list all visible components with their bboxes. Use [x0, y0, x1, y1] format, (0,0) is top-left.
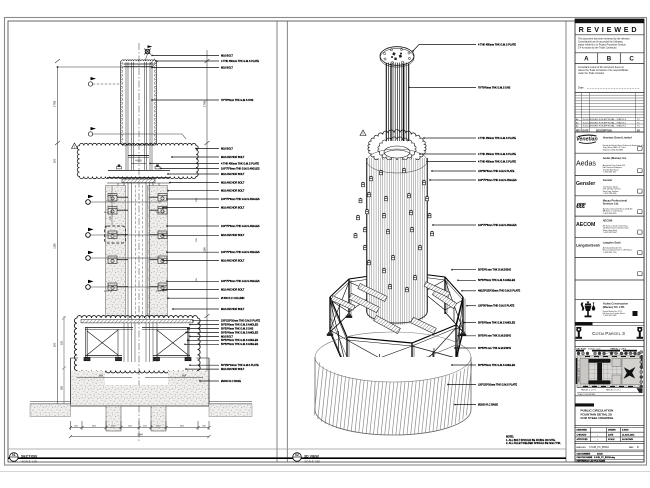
- svg-text:DWG NO: DWG NO: [577, 447, 587, 449]
- svg-text:F+0 TYP: F+0 TYP: [104, 212, 113, 214]
- svg-text:T +853 2833 1113: T +853 2833 1113: [603, 172, 617, 174]
- svg-text:500: 500: [53, 342, 57, 347]
- svg-text:31528: 31528: [597, 453, 603, 455]
- svg-text:FOR STEEL DRAWING: FOR STEEL DRAWING: [581, 416, 614, 420]
- svg-text:DATE: DATE: [608, 433, 614, 436]
- svg-text:CAD FILE NAME: CAD FILE NAME: [577, 456, 593, 459]
- svg-text:100*75*6mm THK G.M.S ANGLES: 100*75*6mm THK G.M.S ANGLES: [221, 167, 260, 170]
- svg-text:M16 ANCHOR BOLT: M16 ANCHOR BOLT: [221, 234, 245, 237]
- svg-text:M16 ANCHOR BOLT: M16 ANCHOR BOLT: [221, 173, 245, 176]
- svg-text:Langdon Seah: Langdon Seah: [603, 241, 621, 245]
- svg-text:PARCEL 2, LOT 2: PARCEL 2, LOT 2: [606, 389, 620, 392]
- svg-text:TC: TC: [637, 122, 640, 124]
- svg-text:4 THK 450mm THK G.M.S PLATE: 4 THK 450mm THK G.M.S PLATE: [221, 60, 259, 63]
- svg-text:LangdonSeah: LangdonSeah: [576, 244, 600, 248]
- svg-text:DESCRIPTION: DESCRIPTION: [596, 130, 612, 132]
- svg-text:01: 01: [12, 453, 16, 457]
- svg-text:DRAWN: DRAWN: [608, 429, 616, 432]
- svg-text:4 THK 450mm THK G.M.S PLATE: 4 THK 450mm THK G.M.S PLATE: [478, 137, 516, 140]
- svg-text:M16 BOLT: M16 BOLT: [221, 147, 233, 150]
- svg-text:100*75*6mm THK G.M.S ANGLES: 100*75*6mm THK G.M.S ANGLES: [221, 198, 260, 201]
- svg-text:T +852 3922 9000: T +852 3922 9000: [603, 232, 617, 234]
- svg-text:PARCEL 2, LOT 1: PARCEL 2, LOT 1: [581, 389, 596, 392]
- svg-text:50*50*6mm THK G.M.S ANGLES: 50*50*6mm THK G.M.S ANGLES: [478, 279, 516, 282]
- svg-text:452: 452: [128, 426, 132, 428]
- svg-text:F+0 TYP: F+0 TYP: [104, 291, 113, 293]
- svg-text:525: 525: [61, 340, 64, 345]
- svg-text:50*50*6mm THK G.M.S SHS: 50*50*6mm THK G.M.S SHS: [221, 328, 254, 331]
- svg-text:-: -: [13, 459, 14, 463]
- svg-text:M16 BOLT: M16 BOLT: [221, 54, 233, 57]
- svg-text:BY: BY: [637, 130, 641, 132]
- svg-text:4&150*150*10mm THK G.M.S PLATE: 4&150*150*10mm THK G.M.S PLATE: [478, 290, 520, 293]
- svg-text:SCALE 1:25: SCALE 1:25: [22, 460, 38, 464]
- svg-text:50*50*6mm THK G.M.S ANGLES: 50*50*6mm THK G.M.S ANGLES: [221, 324, 259, 327]
- svg-text:B: B: [607, 56, 612, 63]
- svg-text:REVIEWED: REVIEWED: [579, 25, 640, 34]
- svg-text:200: 200: [202, 426, 206, 428]
- svg-text:50*50*6 mm THK G.M.S/SHS: 50*50*6 mm THK G.M.S/SHS: [478, 269, 511, 272]
- svg-text:A: A: [584, 56, 589, 63]
- svg-text:50*50*6mm THK G.M.S ANGLES: 50*50*6mm THK G.M.S ANGLES: [478, 322, 516, 325]
- svg-text:DATE: DATE: [583, 129, 590, 132]
- svg-text:L50*150*10mm THK G.M.S PLATE: L50*150*10mm THK G.M.S PLATE: [478, 383, 517, 386]
- svg-text:DRAWING TITLE: DRAWING TITLE: [576, 404, 591, 407]
- svg-text:150*150*10mm THK G.M.S PLATE: 150*150*10mm THK G.M.S PLATE: [221, 320, 260, 323]
- svg-text:ISSUED FOR APPROVAL - STATUS 0: ISSUED FOR APPROVAL - STATUS 0: [591, 118, 627, 121]
- svg-text:864: 864: [99, 374, 104, 377]
- svg-text:SCALE: SCALE: [608, 438, 615, 441]
- svg-text:Date :: Date :: [578, 85, 585, 89]
- svg-text:T +853 2855 2389: T +853 2855 2389: [603, 315, 617, 317]
- svg-text:500: 500: [196, 237, 198, 241]
- svg-text:864: 864: [180, 426, 184, 428]
- svg-text:T +853 2833 1710: T +853 2833 1710: [603, 252, 617, 254]
- svg-text:relieve the Trade Contractor o: relieve the Trade Contractor of its resp…: [578, 69, 629, 72]
- svg-text:DO NOT SCALE DRAWING. VERIFY A: DO NOT SCALE DRAWING. VERIFY ALL DIMENSI…: [577, 20, 642, 23]
- svg-text:CAD NUMBER: CAD NUMBER: [577, 452, 591, 455]
- svg-text:Ø2000 R.C BASE: Ø2000 R.C BASE: [478, 404, 498, 407]
- svg-text:S.WKD: S.WKD: [622, 430, 629, 432]
- svg-text:4 THK 450mm THK G.M.S PLATE: 4 THK 450mm THK G.M.S PLATE: [478, 160, 516, 163]
- svg-text:T +852 2508 2086: T +852 2508 2086: [603, 193, 617, 195]
- svg-text:PARCEL 1, LOT 1: PARCEL 1, LOT 1: [577, 368, 580, 382]
- svg-text:864: 864: [182, 374, 187, 377]
- svg-text:TC: TC: [637, 119, 640, 121]
- svg-text:50*50*6mm THK G.M.S ANGLES: 50*50*6mm THK G.M.S ANGLES: [221, 331, 259, 334]
- svg-text:Consultant(s) and is accorded: Consultant(s) and is accorded the follow…: [578, 41, 623, 44]
- svg-text:50*50*6 mm THK G.M.S/SHS: 50*50*6 mm THK G.M.S/SHS: [478, 335, 511, 338]
- svg-text:100*75*6mm THK G.M.S ANGLES: 100*75*6mm THK G.M.S ANGLES: [221, 280, 260, 283]
- svg-text:3-SUB_PC_B5010.dwg: 3-SUB_PC_B5010.dwg: [594, 457, 615, 459]
- svg-text:SCALE 1:50: SCALE 1:50: [305, 460, 321, 464]
- svg-text:1180: 1180: [53, 243, 57, 249]
- svg-text:Services Ltd.: Services Ltd.: [603, 202, 619, 206]
- svg-text:M16 ANCHOR BOLT: M16 ANCHOR BOLT: [221, 259, 245, 262]
- svg-text:50*50*6 mm THK G.M.S/SHS: 50*50*6 mm THK G.M.S/SHS: [478, 347, 511, 350]
- svg-text:380: 380: [61, 385, 64, 390]
- svg-text:500: 500: [196, 197, 198, 201]
- svg-text:14-AUG-2015: 14-AUG-2015: [622, 433, 635, 436]
- svg-text:AECOM: AECOM: [603, 219, 613, 223]
- svg-text:M16 ANCHOR BOLT: M16 ANCHOR BOLT: [221, 181, 245, 184]
- svg-text:1788: 1788: [203, 100, 207, 107]
- svg-text:02: 02: [295, 453, 299, 457]
- svg-text:under the Trade Contract.: under the Trade Contract.: [578, 72, 605, 75]
- svg-text:F+0 TYP: F+0 TYP: [156, 212, 165, 214]
- svg-text:C: C: [637, 445, 639, 449]
- svg-text:Consultant review of this docu: Consultant review of this document does …: [578, 66, 624, 69]
- svg-text:76*76*6mm THK G.M.S SHS: 76*76*6mm THK G.M.S SHS: [221, 99, 254, 102]
- svg-text:DESIGNED: DESIGNED: [577, 430, 588, 432]
- svg-text:200: 200: [74, 426, 78, 428]
- svg-text:REFERENCE CAD FILE NAME: REFERENCE CAD FILE NAME: [577, 460, 606, 463]
- svg-text:50*50*6mm THK G.M.S ANGLES: 50*50*6mm THK G.M.S ANGLES: [221, 343, 259, 346]
- svg-text:50*50*6mm THK G.M.S ANGLES: 50*50*6mm THK G.M.S ANGLES: [478, 364, 516, 367]
- svg-text:4 THK 450mm THK G.M.S PLATE: 4 THK 450mm THK G.M.S PLATE: [478, 153, 516, 156]
- svg-text:AECOM: AECOM: [576, 222, 595, 228]
- svg-text:Aedas: Aedas: [576, 161, 596, 168]
- svg-text:TC: TC: [637, 126, 640, 128]
- svg-text:Venetian: Venetian: [576, 137, 597, 143]
- svg-text:Gensler: Gensler: [576, 181, 595, 187]
- svg-text:This document has been reviewe: This document has been reviewed by the r…: [578, 38, 630, 41]
- svg-text:Gensler: Gensler: [603, 178, 613, 182]
- svg-text:3-SUB_PC_B5010: 3-SUB_PC_B5010: [589, 446, 610, 449]
- svg-text:4-M16: 4-M16: [135, 160, 142, 163]
- svg-text:ISSUED FOR APPROVAL - STATUS 2: ISSUED FOR APPROVAL - STATUS 2: [591, 125, 627, 128]
- svg-text:T +853 2878 6625: T +853 2878 6625: [603, 213, 617, 215]
- svg-text:864: 864: [92, 426, 96, 428]
- svg-text:C: C: [629, 56, 634, 63]
- svg-text:M16 ANCHOR BOLT: M16 ANCHOR BOLT: [221, 368, 245, 371]
- svg-text:100*75*6mm THK G.M.S ANGLES: 100*75*6mm THK G.M.S ANGLES: [478, 179, 517, 182]
- svg-text:M16 ANCHOR BOLT: M16 ANCHOR BOLT: [221, 308, 245, 311]
- svg-text:100*75*6mm THK G.M.S ANGLES: 100*75*6mm THK G.M.S ANGLES: [478, 224, 517, 227]
- svg-text:76*76*6mm THK G.M.S SHS: 76*76*6mm THK G.M.S SHS: [478, 86, 511, 89]
- svg-text:4 THK 450mm THK G.M.S PLATE: 4 THK 450mm THK G.M.S PLATE: [478, 43, 516, 46]
- svg-text:452: 452: [143, 426, 147, 428]
- svg-text:2984: 2984: [137, 434, 143, 437]
- svg-text:REV: REV: [576, 130, 581, 132]
- svg-text:APPROVED: APPROVED: [577, 438, 589, 441]
- svg-text:50*150*10mm THK G.M.S PLATE: 50*150*10mm THK G.M.S PLATE: [221, 364, 259, 367]
- svg-text:2. ALL FILLET WELDED SHOULD BE: 2. ALL FILLET WELDED SHOULD BE 3mm THK.: [506, 442, 561, 445]
- svg-text:(Macau) CO. LTD.: (Macau) CO. LTD.: [603, 305, 625, 309]
- svg-text:4 THK 450mm THK G.M.S PLATE: 4 THK 450mm THK G.M.S PLATE: [221, 162, 259, 165]
- svg-text:300: 300: [53, 158, 57, 163]
- svg-text:100*75*6mm THK G.M.S ANGLES: 100*75*6mm THK G.M.S ANGLES: [221, 251, 260, 254]
- svg-text:REV: REV: [629, 447, 634, 449]
- svg-text:3D VIEW: 3D VIEW: [304, 454, 319, 458]
- svg-text:M16 ANCHOR BOLT: M16 ANCHOR BOLT: [221, 289, 245, 292]
- svg-text:1788: 1788: [53, 100, 57, 107]
- svg-text:Ø2000 R.C BASE: Ø2000 R.C BASE: [221, 380, 241, 383]
- svg-text:M16 ANCHOR BOLT: M16 ANCHOR BOLT: [221, 156, 245, 159]
- svg-text:M16 ANCHOR BOLT: M16 ANCHOR BOLT: [221, 190, 245, 193]
- svg-text:AS SHOWN: AS SHOWN: [622, 438, 633, 441]
- svg-text:50*50*6mm THK G.M.S ANGLES: 50*50*6mm THK G.M.S ANGLES: [221, 339, 259, 342]
- svg-text:L50*50*6mm THK G.M.S PLATE: L50*50*6mm THK G.M.S PLATE: [478, 305, 515, 308]
- svg-text:SECTION: SECTION: [21, 454, 37, 458]
- svg-text:Telephone: (853) 81-18888: Telephone: (853) 81-18888: [603, 149, 623, 151]
- svg-text:status referred to in Projec: status referred to in Project Procedure …: [578, 44, 626, 47]
- svg-text:M16 BOLT: M16 BOLT: [221, 66, 233, 69]
- svg-text:Venetian Orient Limited: Venetian Orient Limited: [603, 136, 632, 140]
- svg-text:100*75*6mm THK G.M.S ANGLES: 100*75*6mm THK G.M.S ANGLES: [221, 225, 260, 228]
- svg-text:ISSUED FOR APPROVAL - STATUS 1: ISSUED FOR APPROVAL - STATUS 1: [591, 121, 627, 124]
- svg-text:-: -: [297, 459, 298, 463]
- svg-text:Ø 800 R.C COLUMN: Ø 800 R.C COLUMN: [221, 297, 245, 300]
- svg-text:5.4 for action by the Trade Co: 5.4 for action by the Trade Contractor.: [578, 47, 617, 50]
- svg-text:M16 BOLT: M16 BOLT: [221, 335, 233, 338]
- svg-text:Aedas (Macau) Ltd.: Aedas (Macau) Ltd.: [603, 156, 627, 160]
- svg-text:L50*50*6mm THK G.M.S PLATE: L50*50*6mm THK G.M.S PLATE: [478, 170, 515, 173]
- svg-text:F+0 TYP: F+0 TYP: [156, 291, 165, 293]
- svg-text:Yudea Construction: Yudea Construction: [603, 302, 629, 306]
- svg-text:CHECKED: CHECKED: [577, 434, 587, 436]
- svg-text:M16 ANCHOR BOLT: M16 ANCHOR BOLT: [221, 207, 245, 210]
